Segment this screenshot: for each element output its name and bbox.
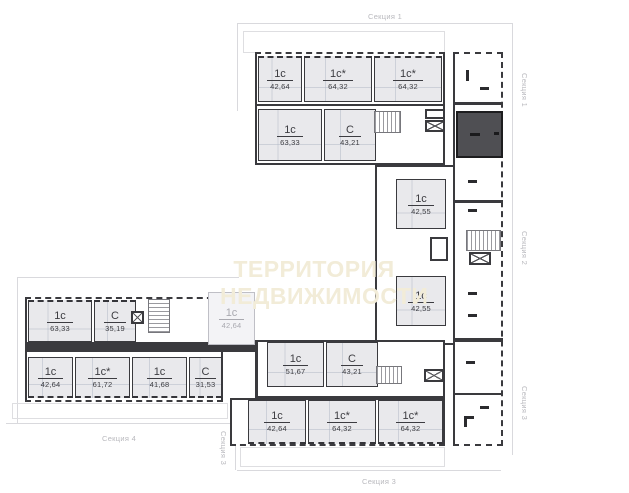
unit-apartment[interactable]: 1с 63,33: [28, 300, 92, 342]
unit-apartment[interactable]: 1с* 64,32: [308, 400, 376, 444]
unit-label: С 35,19: [104, 310, 126, 333]
door-mark: [468, 292, 477, 295]
unit-type: С: [104, 310, 126, 323]
unit-apartment[interactable]: 1с 42,55: [396, 179, 446, 229]
wall: [255, 104, 445, 106]
unit-label: С 43,21: [341, 353, 363, 376]
section-label-right-3: Секция 3: [520, 386, 529, 420]
unit-area: 64,32: [332, 424, 352, 433]
unit-apartment[interactable]: 1с 51,67: [267, 342, 324, 387]
unit-label: 1с* 64,32: [393, 68, 423, 91]
unit-apartment[interactable]: 1с 63,33: [258, 109, 322, 161]
unit-area: 31,53: [196, 380, 216, 389]
unit-type: 1с: [283, 353, 309, 366]
unit-type: 1с: [47, 310, 73, 323]
unit-area: 43,21: [340, 138, 360, 147]
elevator: [131, 311, 144, 324]
unit-apartment[interactable]: С 43,21: [326, 342, 378, 387]
section-label-bottom-right: Секция 3: [362, 477, 396, 486]
unit-label: 1с 63,33: [277, 124, 303, 147]
balcony-outline: [12, 403, 228, 419]
unit-type: 1с*: [393, 68, 423, 81]
unit-apartment[interactable]: 1с 42,64: [28, 357, 73, 398]
unit-area: 64,32: [328, 82, 348, 91]
stairs: [466, 230, 501, 251]
unit-type: 1с: [408, 193, 434, 206]
stairs: [374, 111, 401, 133]
unit-apartment[interactable]: С 31,53: [189, 357, 222, 398]
unit-label: 1с 42,55: [408, 193, 434, 216]
unit-label: 1с 42,64: [38, 366, 64, 389]
unit-type: 1с: [267, 68, 293, 81]
dimension-line: [17, 277, 239, 278]
unit-area: 63,33: [280, 138, 300, 147]
unit-apartment[interactable]: С 35,19: [94, 300, 136, 342]
unit-apartment[interactable]: 1с* 64,32: [374, 56, 442, 102]
unit-area: 43,21: [342, 367, 362, 376]
unit-label: 1с 42,64: [219, 307, 245, 330]
door-mark: [466, 70, 469, 81]
door-mark: [468, 209, 477, 212]
unit-label: 1с 41,68: [147, 366, 173, 389]
section-label-top: Секция 1: [368, 12, 402, 21]
floor-plan: 1с 42,64 1с* 64,32 1с* 64,32 1с 63,33 С …: [0, 0, 629, 493]
elevator: [469, 252, 491, 265]
unit-type: С: [339, 124, 361, 137]
door-mark: [464, 416, 474, 419]
watermark: ТЕРРИТОРИЯ НЕДВИЖИМОСТИ: [220, 256, 408, 310]
stairs: [376, 366, 402, 384]
unit-type: 1с*: [327, 410, 357, 423]
door-mark: [468, 314, 477, 317]
section-label-bottom-left: Секция 4: [102, 434, 136, 443]
unit-label: С 43,21: [339, 124, 361, 147]
elevator: [424, 369, 444, 382]
unit-label: 1с* 61,72: [88, 366, 118, 389]
dimension-line: [237, 470, 501, 471]
unit-area: 64,32: [401, 424, 421, 433]
unit-type: С: [341, 353, 363, 366]
wall: [256, 352, 258, 398]
unit-type: 1с: [277, 124, 303, 137]
balcony-outline: [243, 31, 445, 53]
unit-label: 1с 42,64: [267, 68, 293, 91]
unit-type: 1с: [147, 366, 173, 379]
unit-area: 42,64: [41, 380, 61, 389]
dimension-line: [512, 23, 513, 455]
section-label-right-1: Секция 1: [520, 73, 529, 107]
unit-type: 1с*: [323, 68, 353, 81]
door-mark: [470, 133, 480, 136]
unit-apartment[interactable]: 1с* 64,32: [304, 56, 372, 102]
unit-area: 63,33: [50, 324, 70, 333]
unit-label: С 31,53: [195, 366, 217, 389]
unit-area: 35,19: [105, 324, 125, 333]
dimension-line: [237, 23, 238, 111]
balcony-outline: [240, 447, 445, 467]
unit-label: 1с 51,67: [283, 353, 309, 376]
door-mark: [466, 361, 475, 364]
unit-label: 1с 42,64: [264, 410, 290, 433]
unit-area: 61,72: [93, 380, 113, 389]
unit-apartment[interactable]: 1с 42,64: [248, 400, 306, 444]
unit-area: 51,67: [286, 367, 306, 376]
stairs: [148, 299, 170, 333]
watermark-line2: НЕДВИЖИМОСТИ: [220, 283, 408, 310]
unit-area: 64,32: [398, 82, 418, 91]
unit-type: С: [195, 366, 217, 379]
unit-area: 42,55: [411, 207, 431, 216]
unit-apartment[interactable]: С 43,21: [324, 109, 376, 161]
unit-type: 1с*: [396, 410, 426, 423]
unit-apartment[interactable]: 1с* 64,32: [378, 400, 443, 444]
shaft-box: [425, 109, 445, 119]
unit-apartment[interactable]: 1с* 61,72: [75, 357, 130, 398]
wall: [453, 393, 503, 395]
unit-label: 1с* 64,32: [396, 410, 426, 433]
wall: [453, 200, 503, 203]
unit-label: 1с* 64,32: [323, 68, 353, 91]
unit-area: 42,64: [222, 321, 242, 330]
unit-apartment[interactable]: 1с 41,68: [132, 357, 187, 398]
unit-type: 1с: [264, 410, 290, 423]
unit-area: 42,64: [270, 82, 290, 91]
door-mark: [480, 87, 489, 90]
dimension-line: [6, 423, 230, 424]
unit-area: 42,64: [267, 424, 287, 433]
door-mark: [494, 132, 499, 135]
wall: [453, 102, 503, 105]
unit-label: 1с* 64,32: [327, 410, 357, 433]
watermark-line1: ТЕРРИТОРИЯ: [220, 256, 408, 283]
shaft-box: [430, 237, 448, 261]
door-mark: [480, 406, 489, 409]
unit-apartment[interactable]: 1с 42,64: [258, 56, 302, 102]
unit-area: 41,68: [150, 380, 170, 389]
section-label-left: Секция 3: [219, 431, 228, 465]
unit-type: 1с: [38, 366, 64, 379]
unit-label: 1с 63,33: [47, 310, 73, 333]
dimension-line: [17, 277, 18, 423]
unit-type: 1с*: [88, 366, 118, 379]
section-label-right-2: Секция 2: [520, 231, 529, 265]
door-mark: [468, 180, 477, 183]
elevator: [425, 120, 445, 132]
dimension-line: [237, 23, 513, 24]
wall: [453, 338, 503, 342]
